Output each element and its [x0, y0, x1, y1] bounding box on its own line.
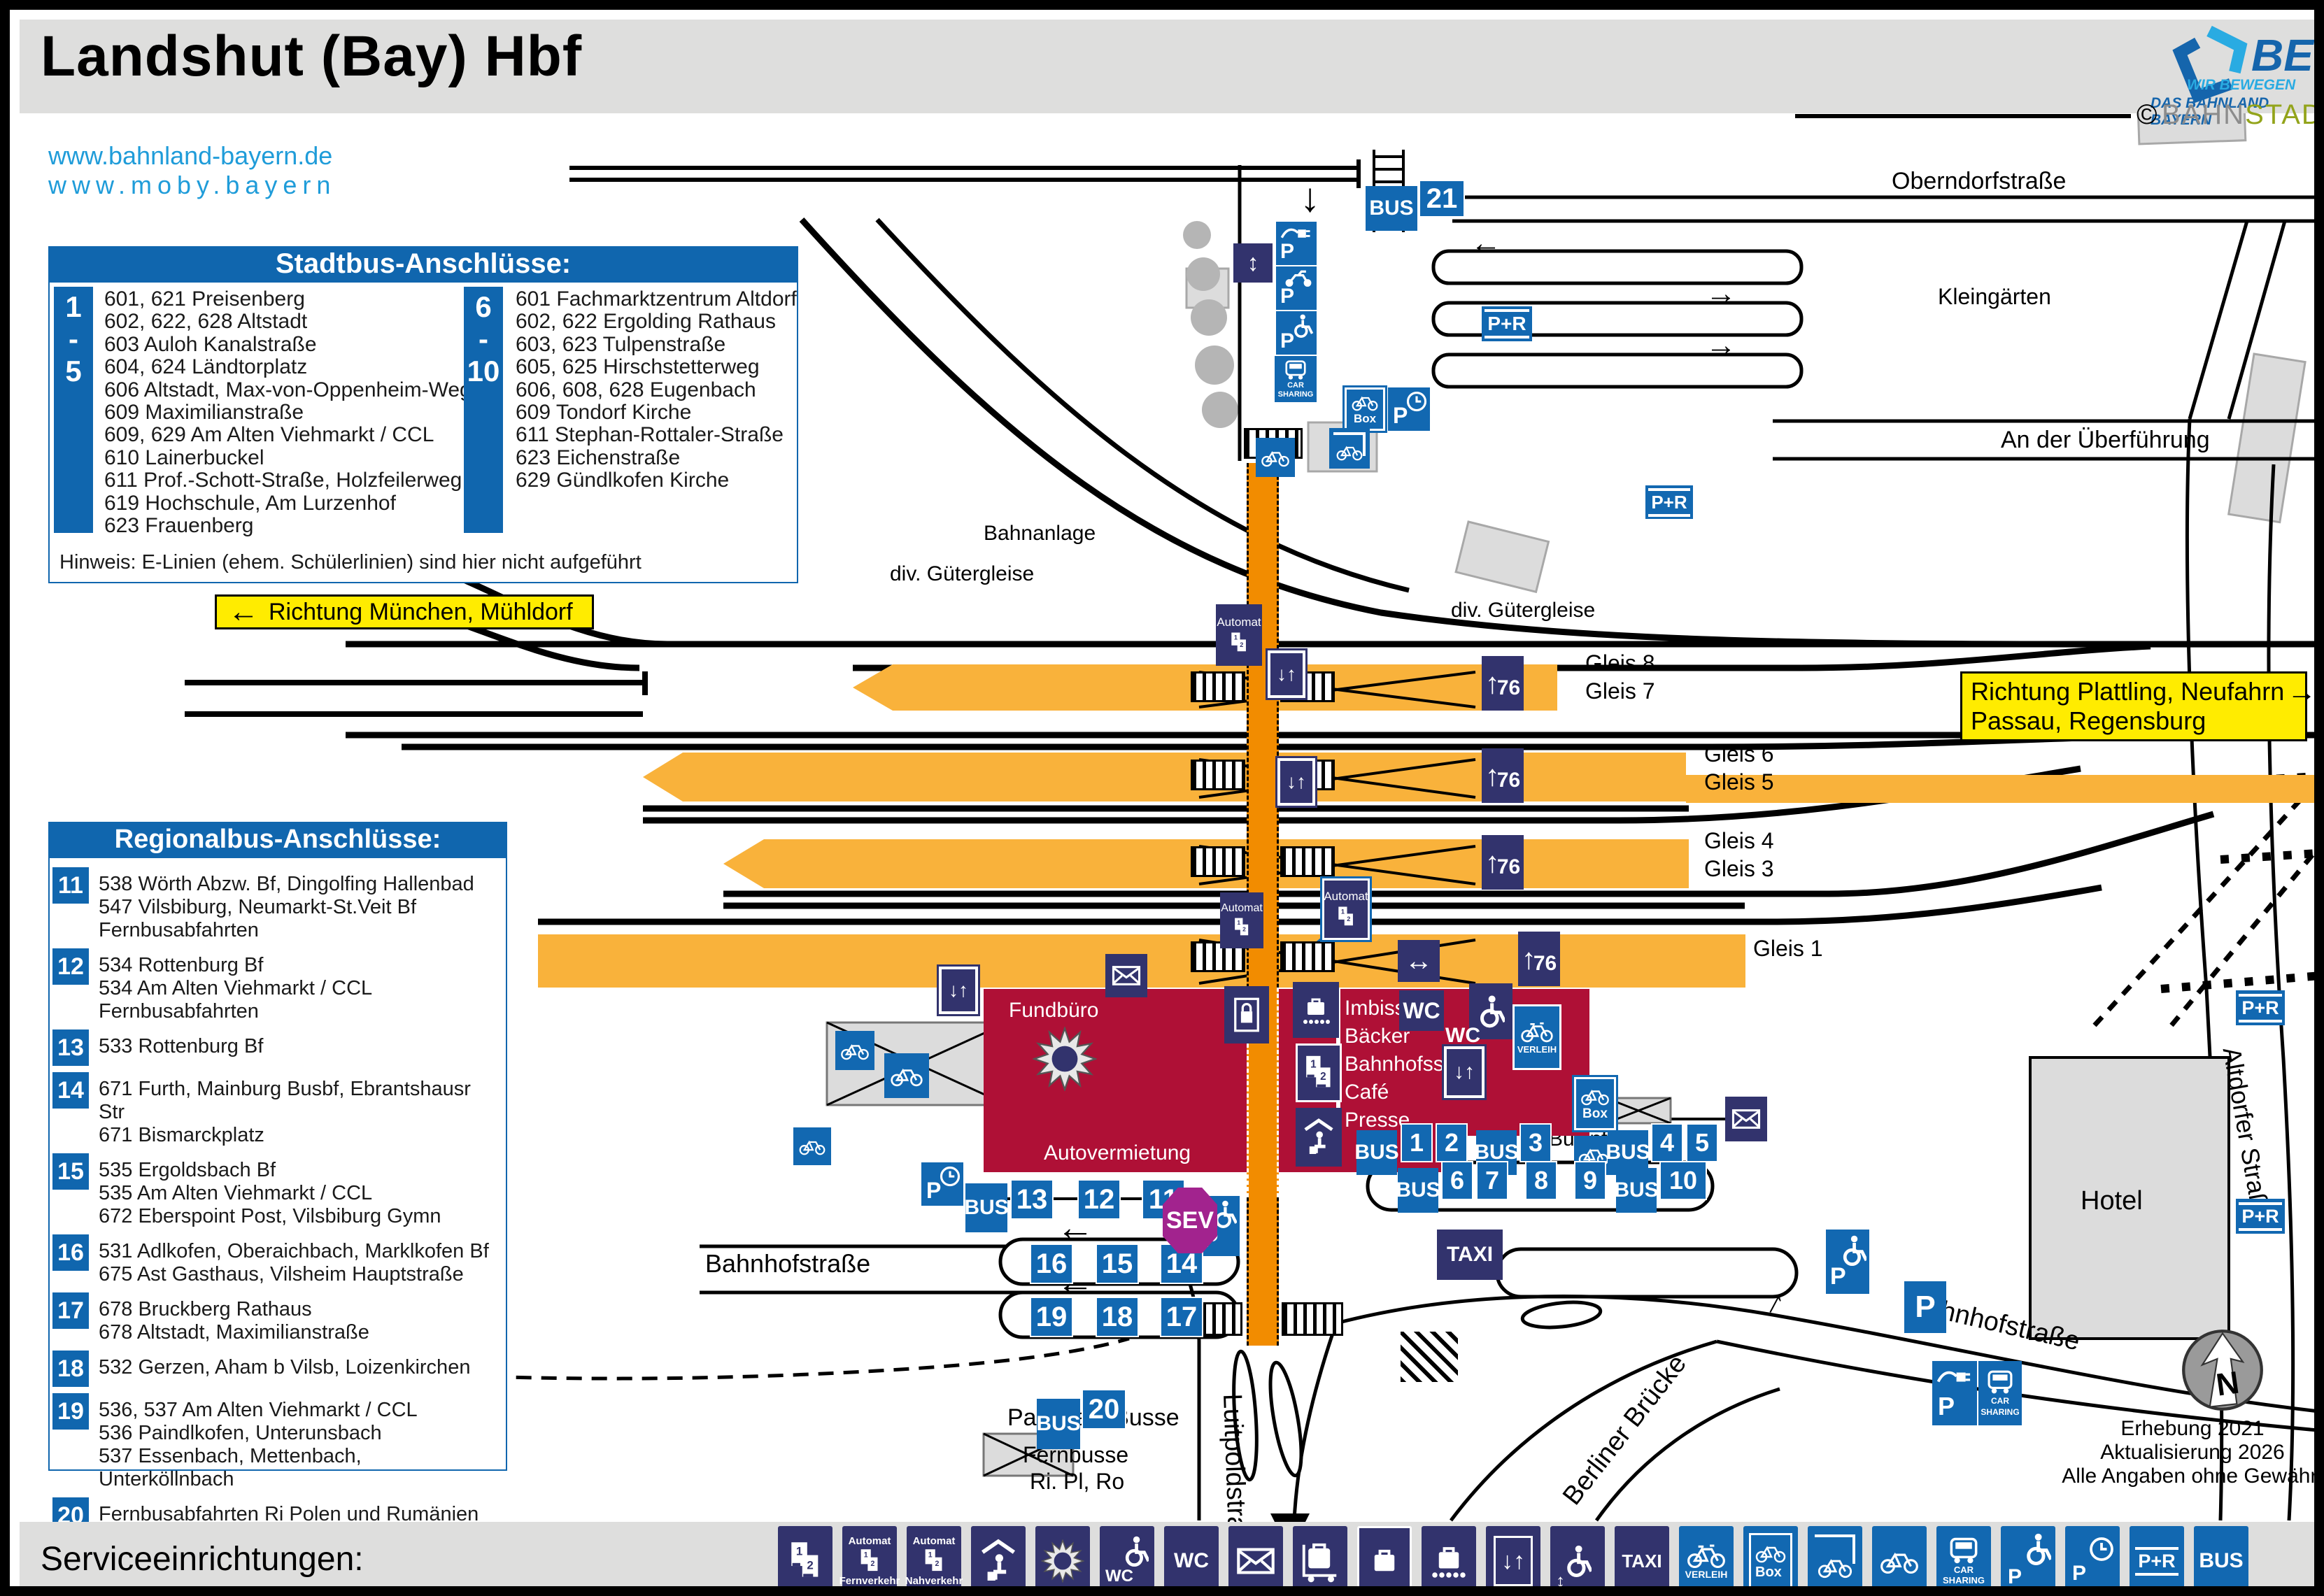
bus-stop-21: 21	[1419, 180, 1465, 218]
wc-accessible-icon: WC	[1100, 1526, 1154, 1596]
bus-stop-4: 4	[1651, 1123, 1683, 1162]
bike-parking-icon	[835, 1031, 874, 1070]
parking-echarging-icon: P	[1932, 1361, 1977, 1425]
range-start: 1	[65, 291, 81, 323]
svg-text:2: 2	[1240, 641, 1243, 648]
regionalbus-item: 13 533 Rottenburg Bf	[52, 1029, 502, 1066]
stop-lines: 533 Rottenburg Bf	[99, 1029, 263, 1066]
stop-lines: 534 Rottenburg Bf 534 Am Alten Viehmarkt…	[99, 948, 372, 1023]
svg-text:1: 1	[796, 1545, 802, 1558]
range-dash: -	[479, 323, 488, 355]
compass-north-icon: N	[2181, 1329, 2264, 1411]
wheelchair-lift-icon: ↕	[1550, 1526, 1605, 1596]
direction-sign-west: ← Richtung München, Mühldorf	[215, 594, 594, 629]
bike-parking-icon	[793, 1127, 831, 1165]
bus-line: 603 Auloh Kanalstraße	[104, 334, 472, 356]
wc-icon: WC	[1164, 1526, 1219, 1596]
stop-13: 13	[1016, 1184, 1048, 1216]
stadtbus-range-1-5: 1 - 5	[54, 287, 93, 533]
label-kleingaerten: Kleingärten	[1938, 284, 2051, 310]
mail-icon	[1725, 1097, 1767, 1141]
bus-stop-sign: BUS	[1356, 1130, 1397, 1175]
automat-label: Automat	[1324, 890, 1368, 904]
stadtbus-box: 1 - 5 601, 621 Preisenberg602, 622, 628 …	[48, 281, 798, 583]
note-gewaehr: Alle Angaben ohne Gewähr!	[2060, 1465, 2324, 1488]
stop-lines: 536, 537 Am Alten Viehmarkt / CCL 536 Pa…	[99, 1393, 502, 1491]
bus-stop-sign: BUS	[1616, 1168, 1657, 1213]
bus-stop-2: 2	[1436, 1123, 1468, 1162]
bus-stop-7: 7	[1476, 1161, 1508, 1200]
box-label: Box	[1755, 1565, 1782, 1581]
police-icon	[1035, 1526, 1090, 1596]
range-end: 10	[467, 355, 500, 387]
fernverkehr-label: Fernverkehr	[839, 1575, 900, 1587]
stop-2: 2	[1445, 1128, 1459, 1157]
bus-stop-sign: BUS	[1398, 1168, 1438, 1213]
beg-wordmark: BEG	[2251, 29, 2324, 81]
bus-line: 606 Altstadt, Max-von-Oppenheim-Weg	[104, 379, 472, 401]
track-76: 76	[1497, 855, 1520, 879]
p-label: P	[1280, 329, 1294, 353]
car-sharing-icon: CAR SHARING	[1978, 1361, 2022, 1425]
website-links: www.bahnland-bayern.de www.moby.bayern	[48, 141, 336, 200]
p-label: P	[1915, 1290, 1935, 1325]
svg-text:2: 2	[1320, 1071, 1326, 1083]
platform-direction-76: ↑ 76	[1482, 835, 1524, 890]
locker-icon	[1224, 986, 1269, 1043]
bus-line: 609 Maximilianstraße	[104, 401, 472, 424]
elevator-icon: ↓↑	[1277, 758, 1315, 806]
right-arrow-icon: →	[1706, 330, 1736, 361]
bus-stop-sign: BUS	[1037, 1399, 1080, 1449]
east-arrow-icon: →	[2287, 677, 2316, 706]
bus-stop-sign: BUS	[965, 1183, 1007, 1232]
updown-arrow: ↕	[1556, 1570, 1565, 1592]
regionalbus-title: Regionalbus-Anschlüsse:	[115, 825, 441, 855]
copyright-icon: ©	[2137, 99, 2158, 130]
park-and-ride-sign: P+R	[1645, 485, 1693, 519]
car-sharing-icon: CAR SHARING	[1936, 1526, 1991, 1596]
svg-text:2: 2	[870, 1560, 874, 1568]
bus-label: BUS	[1606, 1141, 1650, 1164]
car-label: CAR	[1991, 1396, 2009, 1406]
p-label: P	[1938, 1392, 1955, 1421]
svg-text:1: 1	[1310, 1058, 1317, 1070]
ticket-machine-sign: Automat 12	[1220, 892, 1263, 948]
bus-stop-17: 17	[1160, 1297, 1203, 1337]
bike-parking-icon	[1256, 438, 1295, 477]
stop-21: 21	[1426, 183, 1458, 215]
stop-number-badge: 17	[52, 1292, 89, 1329]
track-76: 76	[1497, 676, 1520, 700]
label-gleis1: Gleis 1	[1753, 936, 1823, 962]
label-gleis3: Gleis 3	[1704, 856, 1774, 882]
stairs	[1280, 846, 1335, 877]
label-fundbuero: Fundbüro	[1009, 999, 1098, 1023]
stadtbus-lines-left: 601, 621 Preisenberg602, 622, 628 Altsta…	[104, 288, 472, 537]
park-and-ride-icon: P+R	[2130, 1526, 2184, 1596]
taxi-label: TAXI	[1447, 1243, 1493, 1267]
bus-stop-10: 10	[1659, 1161, 1707, 1200]
left-arrow-icon: ←	[1056, 1263, 1094, 1301]
elevator-arrows: ↓↑	[1287, 771, 1306, 793]
mail-icon	[1228, 1526, 1283, 1596]
regionalbus-header: Regionalbus-Anschlüsse:	[48, 822, 507, 857]
p-label: P	[1280, 240, 1294, 264]
bus-label: BUS	[964, 1196, 1008, 1220]
elevator-arrows: ↓↑	[949, 979, 968, 1002]
svg-text:1: 1	[1341, 908, 1345, 915]
link-moby: www.moby.bayern	[48, 171, 336, 200]
ticket-machine-longdistance-icon: Automat 12 Fernverkehr	[842, 1526, 897, 1596]
pr-label: P+R	[2239, 994, 2281, 1023]
svg-text:1: 1	[928, 1551, 933, 1560]
east-sign-line2: Passau, Regensburg	[1971, 706, 2206, 735]
bus-stop-13: 13	[1010, 1179, 1054, 1220]
svg-text:1: 1	[1237, 919, 1240, 926]
stop-number-badge: 15	[52, 1153, 89, 1190]
label-gleis5: Gleis 5	[1704, 769, 1774, 795]
bus-stop-20: 20	[1082, 1389, 1126, 1430]
automat-label: Automat	[1221, 902, 1263, 915]
regionalbus-item: 17 678 Bruckberg Rathaus 678 Altstadt, M…	[52, 1292, 502, 1344]
left-arrow-icon: ←	[1471, 228, 1501, 259]
crosswalk	[1401, 1332, 1458, 1382]
pr-label: P+R	[1485, 309, 1529, 339]
note-erhebung: Erhebung 2021	[2060, 1417, 2324, 1441]
automat-label: Automat	[913, 1535, 956, 1547]
left-luggage-icon	[1422, 1526, 1476, 1596]
stadtbus-note: Hinweis: E-Linien (ehem. Schülerlinien) …	[59, 551, 642, 574]
underpass-arrows-icon: ↔	[1398, 940, 1440, 982]
stop-number-badge: 19	[52, 1393, 89, 1430]
label-gleis8: Gleis 8	[1585, 650, 1655, 676]
regionalbus-box: 11 538 Wörth Abzw. Bf, Dingolfing Hallen…	[48, 857, 507, 1471]
parking-echarging-icon: P	[1276, 222, 1317, 265]
parking-disabled-icon: P	[2001, 1526, 2055, 1596]
stop-number-badge: 12	[52, 948, 89, 985]
bus-stop-8: 8	[1525, 1161, 1557, 1200]
direction-sign-east: Richtung Plattling, Neufahrn → Passau, R…	[1960, 671, 2307, 741]
elevator-icon: ↓↑	[1268, 650, 1305, 698]
stop-number-badge: 11	[52, 867, 89, 904]
luggage-cart-icon	[1293, 1526, 1347, 1596]
stop-17: 17	[1166, 1302, 1198, 1333]
automat-label: Automat	[849, 1535, 891, 1547]
bus-line: 601 Fachmarktzentrum Altdorf	[516, 288, 797, 311]
bahnstadt-part1: BAHN	[2162, 99, 2245, 130]
regionalbus-item: 19 536, 537 Am Alten Viehmarkt / CCL 536…	[52, 1393, 502, 1491]
elevator-arrows: ↓↑	[1277, 663, 1296, 685]
waiting-room-icon	[971, 1526, 1026, 1596]
verleih-label: VERLEIH	[1685, 1569, 1728, 1580]
parking-disabled-icon: P	[1826, 1230, 1869, 1294]
bus-stop-1: 1	[1401, 1123, 1433, 1162]
sharing-label: SHARING	[1278, 390, 1314, 399]
elevator-icon: ↓↑	[1444, 1046, 1485, 1098]
service-icons: 12 Automat 12 Fernverkehr Automat 12 Nah…	[778, 1526, 2248, 1596]
range-dash: -	[69, 323, 78, 355]
stop-lines: 532 Gerzen, Aham b Vilsb, Loizenkirchen	[99, 1351, 470, 1387]
elevator-arrows: ↕	[1247, 250, 1259, 277]
stop-20: 20	[1089, 1394, 1120, 1425]
left-arrow-icon: ←	[1056, 1209, 1094, 1246]
ticket-office-icon: 12	[778, 1526, 832, 1596]
locker-icon	[1357, 1526, 1412, 1596]
platform-direction-76: ↑ 76	[1482, 748, 1524, 803]
bike-box-icon: Box	[1574, 1077, 1616, 1130]
parking-time-icon: P	[921, 1162, 963, 1206]
automat-label: Automat	[1217, 615, 1261, 629]
sev-label: SEV	[1166, 1207, 1214, 1234]
stop-number-badge: 16	[52, 1234, 89, 1271]
label-autovermietung: Autovermietung	[1044, 1141, 1191, 1165]
page-title: Landshut (Bay) Hbf	[41, 24, 582, 90]
bike-parking-icon	[884, 1053, 929, 1098]
verleih-label: VERLEIH	[1517, 1044, 1557, 1055]
stop-4: 4	[1660, 1128, 1674, 1157]
track-76: 76	[1497, 769, 1520, 792]
bus-line: 623 Eichenstraße	[516, 447, 797, 469]
bus-label: BUS	[1036, 1412, 1080, 1436]
stadtbus-title: Stadtbus-Anschlüsse:	[276, 248, 571, 280]
wc-sign: WC	[1399, 990, 1444, 1031]
parking-motorcycle-icon: P	[1276, 266, 1317, 310]
parking-time-icon: P	[1388, 387, 1430, 431]
label-gleis6: Gleis 6	[1704, 741, 1774, 767]
stop-7: 7	[1485, 1166, 1499, 1195]
east-sign-line1: Richtung Plattling, Neufahrn	[1971, 677, 2284, 706]
bus-stop-5: 5	[1686, 1123, 1718, 1162]
platform-direction-76: ↑ 76	[1518, 932, 1560, 986]
covered-bike-parking-icon	[1808, 1526, 1862, 1596]
bus-line: 604, 624 Ländtorplatz	[104, 356, 472, 378]
bus-stop-19: 19	[1030, 1297, 1073, 1337]
west-sign-text: Richtung München, Mühldorf	[269, 599, 573, 626]
stairs	[1191, 846, 1245, 877]
sharing-label: SHARING	[1943, 1575, 1985, 1586]
bus-stop-3: 3	[1519, 1123, 1552, 1162]
stop-5: 5	[1695, 1128, 1709, 1157]
regionalbus-item: 15 535 Ergoldsbach Bf 535 Am Alten Viehm…	[52, 1153, 502, 1228]
bus-label: BUS	[1614, 1178, 1658, 1202]
bike-rental-icon: VERLEIH	[1679, 1526, 1734, 1596]
bus-line: 602, 622, 628 Altstadt	[104, 311, 472, 333]
stairs	[1191, 760, 1245, 790]
label-gleis7: Gleis 7	[1585, 678, 1655, 704]
label-oberndorfstrasse: Oberndorfstraße	[1892, 168, 2066, 195]
bus-stop-9: 9	[1574, 1161, 1606, 1200]
range-end: 5	[65, 355, 81, 387]
p-label: P	[2072, 1562, 2086, 1586]
bahnstadt-part2: STADT	[2245, 99, 2324, 130]
stop-lines: 671 Furth, Mainburg Busbf, Ebrantshausr …	[99, 1072, 502, 1147]
covered-bike-parking-icon	[1329, 428, 1370, 469]
bus-label: BUS	[2199, 1549, 2243, 1573]
beg-tagline-1: WIR BEWEGEN	[2187, 77, 2295, 94]
stop-lines: 531 Adlkofen, Oberaichbach, Marklkofen B…	[99, 1234, 489, 1286]
map-notes: Erhebung 2021 Aktualisierung 2026 Alle A…	[2060, 1417, 2324, 1488]
pr-label: P+R	[2239, 1202, 2281, 1231]
sev-stop-sign: SEV	[1163, 1188, 1217, 1253]
bus-line: 603, 623 Tulpenstraße	[516, 334, 797, 356]
police-badge-icon	[1033, 1027, 1097, 1091]
parking-sign: P	[1904, 1281, 1946, 1333]
bus-stop-18: 18	[1096, 1297, 1139, 1337]
taxi-icon: TAXI	[1615, 1526, 1669, 1596]
box-label: Box	[1582, 1106, 1608, 1122]
elevator-icon: ↕	[1233, 243, 1273, 283]
stop-19: 19	[1036, 1302, 1068, 1333]
regionalbus-item: 12 534 Rottenburg Bf 534 Am Alten Viehma…	[52, 948, 502, 1023]
box-label: Box	[1354, 412, 1376, 426]
p-label: P	[2008, 1565, 2022, 1589]
svg-text:2: 2	[1347, 915, 1350, 922]
bus-line: 610 Lainerbuckel	[104, 447, 472, 469]
bus-stop-6: 6	[1441, 1161, 1473, 1200]
range-start: 6	[475, 291, 491, 323]
bus-label: BUS	[1369, 197, 1413, 220]
p-label: P	[1280, 285, 1294, 308]
pr-label: P+R	[2135, 1547, 2178, 1576]
stop-lines: 535 Ergoldsbach Bf 535 Am Alten Viehmark…	[99, 1153, 441, 1228]
elevator-arrows: ↓↑	[1454, 1060, 1475, 1084]
stadtbus-range-6-10: 6 - 10	[464, 287, 503, 533]
waiting-room-icon	[1296, 1108, 1342, 1167]
left-luggage-icon	[1293, 982, 1339, 1038]
stop-3: 3	[1529, 1128, 1543, 1157]
car-label: CAR	[1287, 381, 1304, 390]
bus-line: 623 Frauenberg	[104, 515, 472, 537]
platform-direction-76: ↑ 76	[1482, 656, 1524, 711]
label-hotel: Hotel	[2081, 1186, 2143, 1216]
bus-line: 601, 621 Preisenberg	[104, 288, 472, 311]
right-arrow-icon: →	[1706, 278, 1736, 309]
bus-line: 605, 625 Hirschstetterweg	[516, 356, 797, 378]
stop-8: 8	[1534, 1166, 1548, 1195]
p-label: P	[1830, 1263, 1846, 1290]
bike-parking-icon	[1872, 1526, 1927, 1596]
bus-line: 611 Prof.-Schott-Straße, Holzfeilerweg	[104, 469, 472, 492]
bus-line: 602, 622 Ergolding Rathaus	[516, 311, 797, 333]
park-and-ride-sign: P+R	[2236, 1199, 2285, 1234]
bus-line: 611 Stephan-Rottaler-Straße	[516, 424, 797, 446]
west-arrow-icon: ←	[228, 597, 259, 627]
label-fernbusse-2: Ri. Pl, Ro	[1030, 1469, 1124, 1495]
regionalbus-item: 11 538 Wörth Abzw. Bf, Dingolfing Hallen…	[52, 867, 502, 942]
bike-box-icon: Box	[1743, 1526, 1798, 1596]
stairs	[1191, 671, 1245, 702]
bus-label: BUS	[1354, 1141, 1398, 1164]
smoke-blobs	[1183, 221, 1238, 428]
ticket-machine-sign: Automat 12	[1322, 878, 1370, 940]
escalator-icon: ↓↑	[1486, 1526, 1540, 1596]
taxi-stand-sign: TAXI	[1437, 1230, 1503, 1280]
bus-label: BUS	[1396, 1178, 1440, 1202]
svg-text:2: 2	[807, 1558, 813, 1572]
label-gueterglelise-1: div. Gütergleise	[890, 562, 1034, 586]
stairs	[1280, 941, 1335, 972]
label-gueterglelise-2: div. Gütergleise	[1451, 599, 1595, 622]
bus-stop-15: 15	[1096, 1244, 1139, 1284]
bus-stop-sign: BUS	[1366, 186, 1417, 231]
bike-box-icon: Box	[1345, 387, 1385, 431]
label-ueberfuehrung: An der Überführung	[2001, 427, 2210, 454]
nahverkehr-label: Nahverkehr	[905, 1575, 963, 1587]
bus-line: 609, 629 Am Alten Viehmarkt / CCL	[104, 424, 472, 446]
stop-10: 10	[1669, 1166, 1697, 1195]
pr-label: P+R	[1648, 488, 1689, 517]
link-bahnland: www.bahnland-bayern.de	[48, 141, 336, 171]
bus-line: 609 Tondorf Kirche	[516, 401, 797, 424]
bahnstadt-credit: © BAHNSTADT	[2137, 99, 2324, 131]
sharing-label: SHARING	[1981, 1407, 2019, 1417]
escalator-arrows: ↓↑	[1501, 1548, 1525, 1575]
parking-disabled-icon: P	[1276, 311, 1317, 355]
park-and-ride-sign: P+R	[2236, 990, 2285, 1025]
mail-icon	[1105, 954, 1147, 997]
regionalbus-item: 14 671 Furth, Mainburg Busbf, Ebrantshau…	[52, 1072, 502, 1147]
elevator-icon: ↓↑	[939, 967, 978, 1014]
stop-number-badge: 13	[52, 1029, 89, 1066]
wc-label: WC	[1105, 1567, 1133, 1586]
stop-lines: 538 Wörth Abzw. Bf, Dingolfing Hallenbad…	[99, 867, 474, 942]
stop-18: 18	[1102, 1302, 1133, 1333]
wc-accessible-label: WC	[1445, 1024, 1480, 1048]
ticket-machine-regional-icon: Automat 12 Nahverkehr	[907, 1526, 961, 1596]
note-aktualisierung: Aktualisierung 2026	[2060, 1441, 2324, 1465]
bike-rental-icon: VERLEIH	[1512, 1004, 1561, 1070]
footer-title: Serviceeinrichtungen:	[41, 1540, 364, 1579]
svg-text:2: 2	[935, 1560, 939, 1568]
track-76: 76	[1533, 952, 1557, 976]
ticket-machine-sign: Automat 12	[1216, 604, 1262, 666]
park-and-ride-sign: P+R	[1482, 306, 1532, 341]
svg-text:2: 2	[1242, 926, 1246, 933]
regionalbus-item: 18 532 Gerzen, Aham b Vilsb, Loizenkirch…	[52, 1351, 502, 1387]
parking-time-icon: P	[2065, 1526, 2120, 1596]
wc-label: WC	[1174, 1549, 1209, 1573]
regionalbus-item: 16 531 Adlkofen, Oberaichbach, Marklkofe…	[52, 1234, 502, 1286]
car-label: CAR	[1954, 1565, 1974, 1575]
stop-9: 9	[1583, 1166, 1597, 1195]
stop-1: 1	[1410, 1128, 1424, 1157]
left-right-arrow: ↔	[1405, 946, 1433, 977]
station-map-poster: Landshut (Bay) Hbf BEG WIR BEWEGEN DAS B…	[0, 0, 2324, 1596]
bus-line: 619 Hochschule, Am Lurzenhof	[104, 492, 472, 515]
taxi-label: TAXI	[1622, 1551, 1661, 1572]
stadtbus-lines-right: 601 Fachmarktzentrum Altdorf602, 622 Erg…	[516, 288, 797, 492]
label-bahnhofstrasse-west: Bahnhofstraße	[705, 1249, 870, 1278]
label-bahnanlage: Bahnanlage	[984, 522, 1096, 546]
stadtbus-header: Stadtbus-Anschlüsse:	[48, 246, 798, 281]
stop-lines: 678 Bruckberg Rathaus 678 Altstadt, Maxi…	[99, 1292, 369, 1344]
svg-text:1: 1	[864, 1551, 868, 1560]
wc-label: WC	[1403, 998, 1440, 1024]
svg-text:1: 1	[1234, 634, 1238, 641]
label-gleis4: Gleis 4	[1704, 828, 1774, 854]
stairs	[1282, 1302, 1343, 1336]
stop-number-badge: 18	[52, 1351, 89, 1387]
stop-number-badge: 14	[52, 1072, 89, 1109]
stop-15: 15	[1102, 1248, 1133, 1280]
bus-line: 606, 608, 628 Eugenbach	[516, 379, 797, 401]
stop-6: 6	[1450, 1166, 1464, 1195]
bus-icon: BUS	[2194, 1526, 2248, 1596]
down-arrow-icon: ↓	[1300, 178, 1320, 218]
ticket-office-icon: 1 2	[1296, 1043, 1342, 1102]
bus-line: 629 Gündlkofen Kirche	[516, 469, 797, 492]
